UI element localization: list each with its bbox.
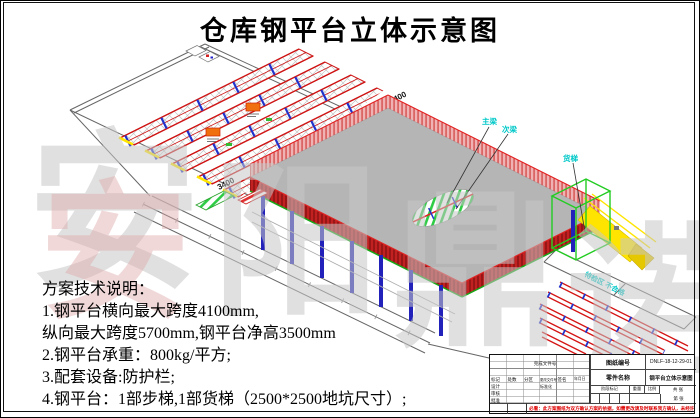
weight-label: 重量 bbox=[630, 385, 645, 394]
part-name-label: 零件名称 bbox=[591, 370, 645, 385]
warning-text: 必看：此方案图纸为双方确认方案的依据，如需更改请及时联系我方确认，未经许可不得复… bbox=[526, 403, 695, 414]
review-label: 审核 bbox=[491, 391, 500, 397]
main-beam-label: 主梁 bbox=[482, 116, 497, 126]
sign-label: 签名 bbox=[558, 377, 573, 383]
technical-notes: 方案技术说明： 1.钢平台横向最大跨度4100mm, 纵向最大跨度5700mm,… bbox=[42, 279, 406, 411]
notes-line: 2.钢平台承重：800kg/平方; bbox=[42, 345, 406, 367]
notes-line: 纵向最大跨度5700mm,钢平台净高3500mm bbox=[42, 323, 406, 345]
design-label: 设计 bbox=[491, 384, 500, 390]
change-doc-label: 更改文件号 bbox=[540, 377, 557, 382]
stage-mark-label: 阶段标记 bbox=[590, 385, 630, 394]
drawing-no-label: 图纸编号 bbox=[591, 355, 645, 369]
title-block: 完成文件号 标记 处数 分区 更改文件号 签名 年月日 设计 标准化 审核 批准… bbox=[489, 354, 695, 414]
mark-label: 标记 bbox=[491, 377, 506, 383]
date-label: 年月日 bbox=[574, 377, 589, 382]
notes-line: 4.钢平台：1部步梯,1部货梯（2500*2500地坑尺寸）; bbox=[42, 389, 406, 411]
scale-label: 比例 bbox=[645, 385, 660, 394]
cargo-lift-label: 货梯 bbox=[562, 153, 578, 163]
stair-landing bbox=[196, 191, 234, 210]
count-label: 处数 bbox=[508, 377, 523, 383]
secondary-beam-label: 次梁 bbox=[502, 124, 517, 134]
drawing-no-value: DNLF-18-12-29-01 bbox=[646, 355, 696, 369]
page-title: 仓库钢平台立体示意图 bbox=[0, 9, 700, 48]
total-sheets-cell: 共 张 bbox=[660, 385, 696, 394]
finish-doc-label: 完成文件号 bbox=[520, 361, 570, 367]
zone-label: 分区 bbox=[524, 377, 539, 383]
part-name-value: 钢平台立体示意图 bbox=[646, 370, 696, 385]
notes-heading: 方案技术说明： bbox=[42, 279, 406, 301]
drawing-sheet: 待检区 不合格 bbox=[0, 0, 700, 418]
notes-line: 1.钢平台横向最大跨度4100mm, bbox=[42, 301, 406, 323]
standardize-label: 标准化 bbox=[540, 384, 552, 390]
approve-label: 批准 bbox=[491, 398, 500, 404]
notes-line: 3.配套设备:防护栏; bbox=[42, 367, 406, 389]
sheet-no-cell: 第 张 bbox=[660, 394, 696, 403]
